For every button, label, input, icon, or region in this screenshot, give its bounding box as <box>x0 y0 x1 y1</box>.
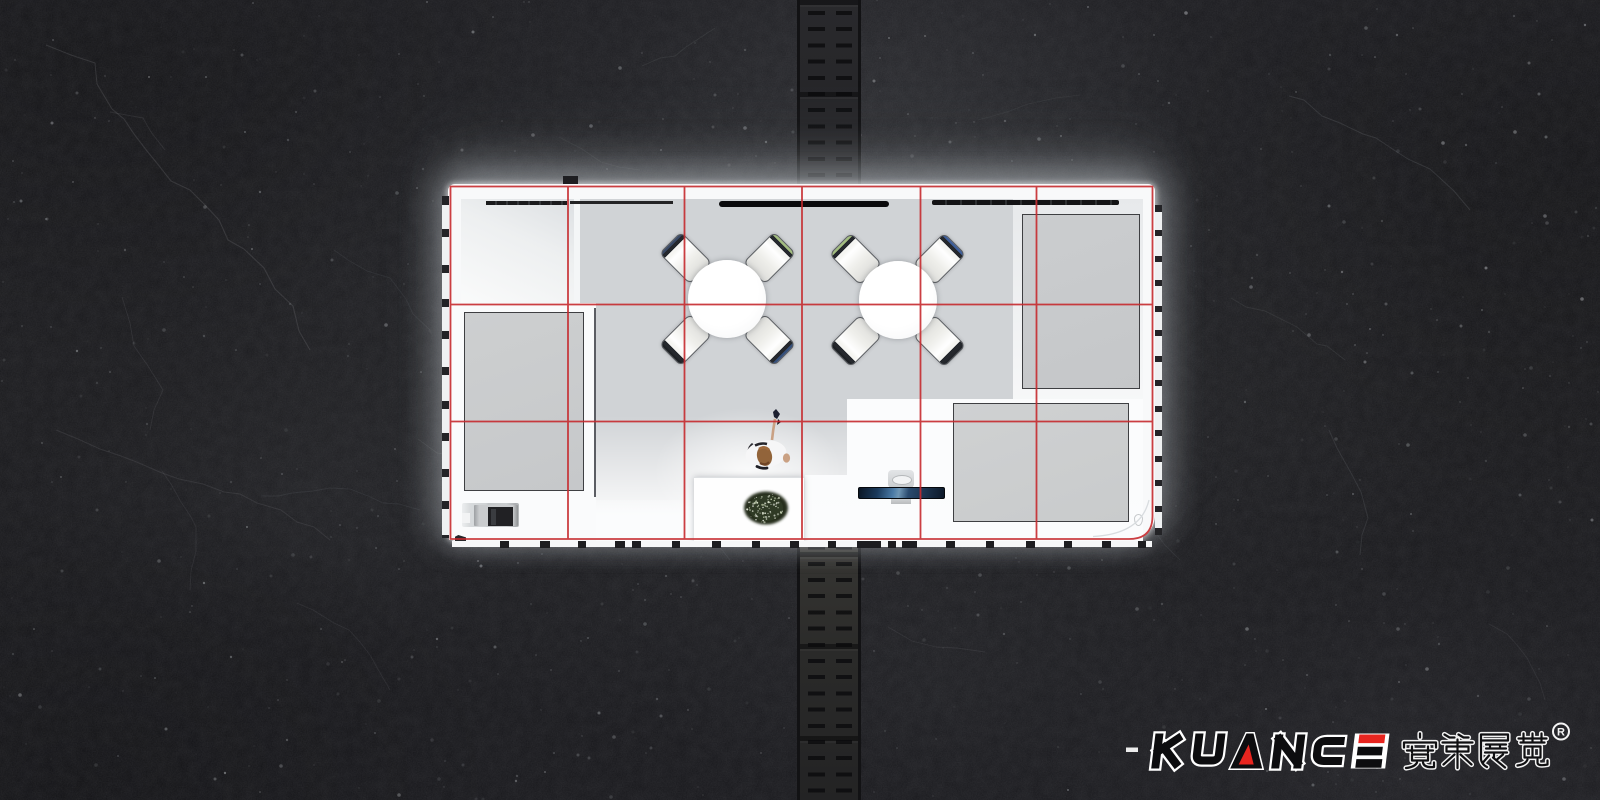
svg-text:R: R <box>1557 727 1565 739</box>
